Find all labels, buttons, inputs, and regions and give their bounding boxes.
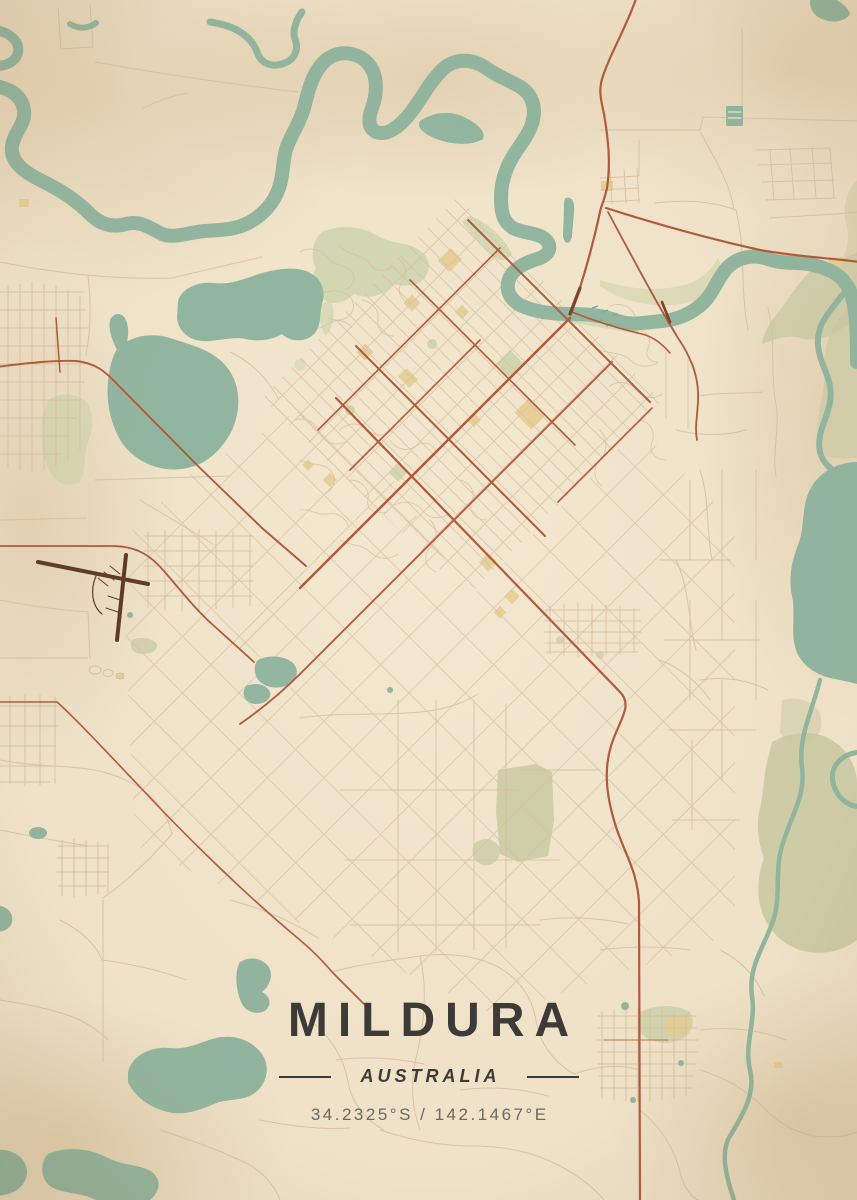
poster-coordinates: 34.2325°S / 142.1467°E <box>0 1105 857 1125</box>
subtitle-divider-left <box>279 1076 331 1078</box>
poster-title: MILDURA <box>0 996 857 1046</box>
subtitle-row: AUSTRALIA <box>0 1066 857 1087</box>
poster-subtitle: AUSTRALIA <box>357 1066 501 1087</box>
title-block: MILDURA AUSTRALIA 34.2325°S / 142.1467°E <box>0 996 857 1125</box>
map-poster: MILDURA AUSTRALIA 34.2325°S / 142.1467°E <box>0 0 857 1200</box>
subtitle-divider-right <box>527 1076 579 1078</box>
